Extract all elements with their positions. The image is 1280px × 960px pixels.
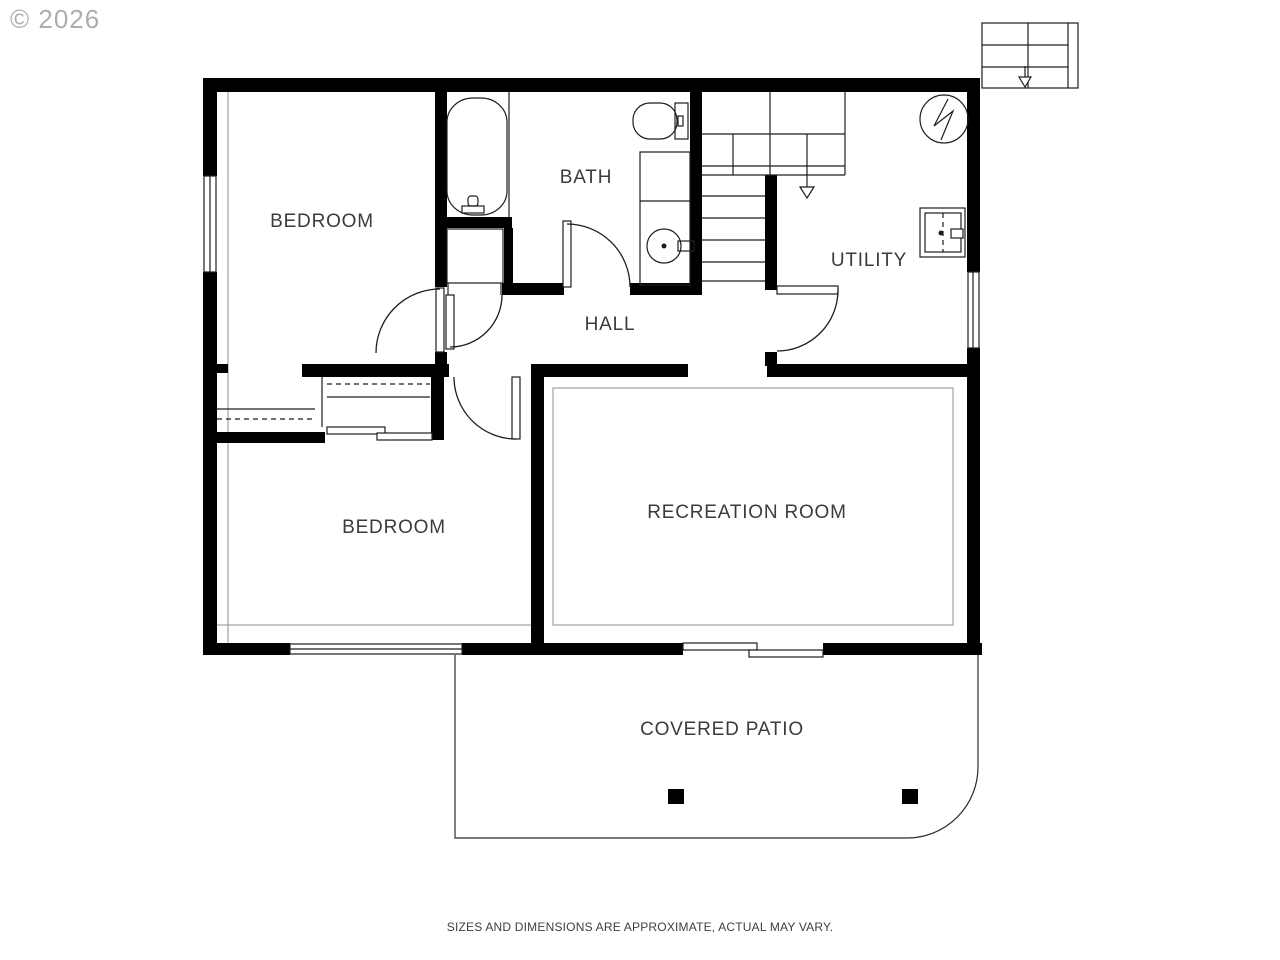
door-linen-closet bbox=[446, 295, 502, 349]
window-left-bedroom bbox=[204, 176, 216, 272]
toilet bbox=[633, 103, 688, 139]
water-heater bbox=[920, 95, 968, 143]
window-bottom-bedroom bbox=[290, 644, 462, 654]
room-label-bedroom-lower: BEDROOM bbox=[342, 517, 446, 538]
floor-plan: BEDROOM BATH HALL UTILITY BEDROOM RECREA… bbox=[0, 0, 1280, 960]
room-label-bedroom-upper: BEDROOM bbox=[270, 211, 374, 232]
door-bedroom-upper bbox=[376, 288, 444, 353]
walls bbox=[203, 78, 982, 655]
bathtub bbox=[447, 92, 509, 217]
disclaimer-text: SIZES AND DIMENSIONS ARE APPROXIMATE, AC… bbox=[447, 920, 833, 934]
room-label-hall: HALL bbox=[585, 314, 636, 335]
room-label-bath: BATH bbox=[560, 167, 612, 188]
furnace bbox=[920, 208, 965, 257]
exterior-stairs-down-arrow-icon bbox=[1019, 66, 1031, 87]
stairs-down-arrow-icon bbox=[800, 175, 814, 198]
covered-patio bbox=[455, 655, 978, 838]
patio-post bbox=[902, 789, 918, 804]
vanity-sink bbox=[640, 152, 694, 285]
linen-closet bbox=[447, 229, 503, 295]
patio-post bbox=[668, 789, 684, 804]
sliding-door-closet bbox=[327, 427, 432, 440]
closet-left bbox=[217, 409, 315, 419]
copyright-watermark: © 2026 bbox=[10, 4, 100, 34]
floor-plan-page: BEDROOM BATH HALL UTILITY BEDROOM RECREA… bbox=[0, 0, 1280, 960]
room-label-patio: COVERED PATIO bbox=[640, 719, 804, 740]
sliding-door-patio bbox=[683, 643, 823, 657]
exterior-staircase bbox=[982, 23, 1078, 88]
closet-middle bbox=[322, 377, 430, 427]
door-utility bbox=[777, 286, 838, 351]
room-label-recreation: RECREATION ROOM bbox=[647, 502, 847, 523]
room-label-utility: UTILITY bbox=[831, 250, 907, 271]
door-bath bbox=[563, 221, 630, 287]
door-bedroom-lower bbox=[454, 377, 520, 439]
window-right-utility bbox=[968, 272, 979, 348]
